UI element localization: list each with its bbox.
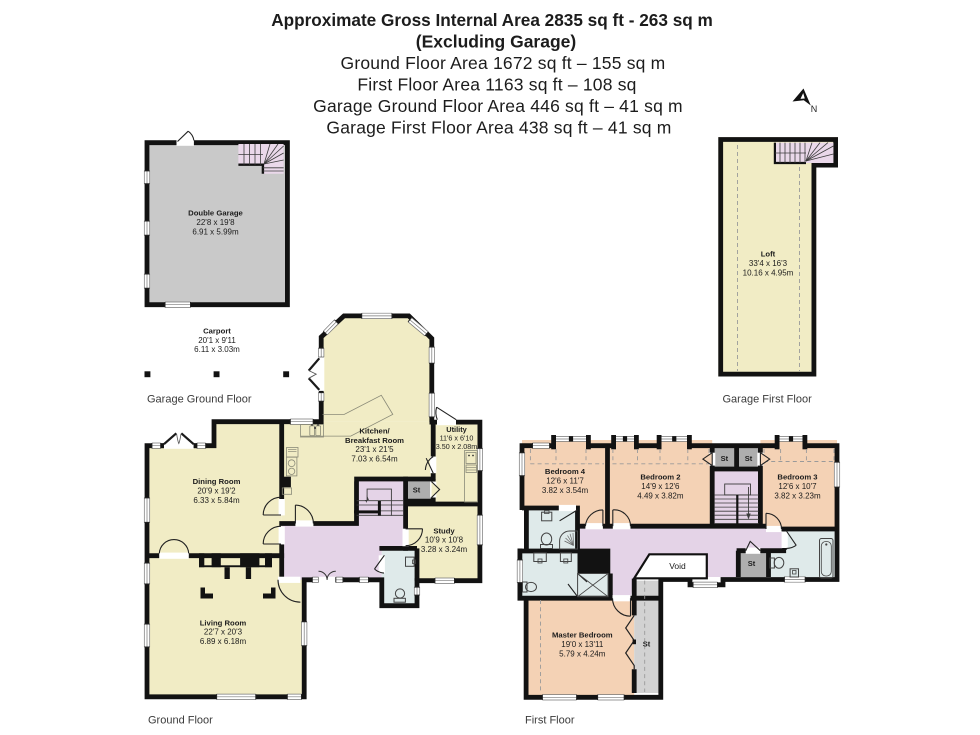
svg-text:Ground Floor: Ground Floor	[148, 715, 213, 727]
svg-text:22'8 x 19'8: 22'8 x 19'8	[196, 218, 235, 227]
svg-text:First Floor: First Floor	[525, 715, 575, 727]
svg-text:St: St	[748, 559, 756, 568]
svg-text:20'9 x 19'2: 20'9 x 19'2	[197, 487, 236, 496]
svg-text:Bedroom 2: Bedroom 2	[640, 473, 680, 482]
svg-text:7.03 x 6.54m: 7.03 x 6.54m	[351, 454, 398, 463]
svg-text:Bedroom 4: Bedroom 4	[545, 467, 586, 476]
svg-text:6.11 x 3.03m: 6.11 x 3.03m	[194, 345, 240, 354]
svg-text:(Excluding Garage): (Excluding Garage)	[416, 32, 576, 52]
svg-text:14'9 x 12'6: 14'9 x 12'6	[641, 482, 680, 491]
svg-text:19'0 x 13'11: 19'0 x 13'11	[561, 640, 604, 649]
svg-text:20'1 x 9'11: 20'1 x 9'11	[198, 336, 236, 345]
svg-text:10.16 x 4.95m: 10.16 x 4.95m	[743, 268, 794, 277]
svg-text:12'6 x 10'7: 12'6 x 10'7	[778, 482, 817, 491]
svg-text:First Floor Area 1163 sq ft –: First Floor Area 1163 sq ft – 108 sq	[357, 75, 636, 95]
svg-text:6.33 x 5.84m: 6.33 x 5.84m	[193, 496, 240, 505]
svg-text:3.28 x 3.24m: 3.28 x 3.24m	[421, 545, 468, 554]
svg-text:Garage Ground Floor: Garage Ground Floor	[147, 394, 252, 406]
svg-text:Living Room: Living Room	[200, 618, 247, 627]
svg-text:Void: Void	[669, 561, 686, 571]
svg-text:Dining Room: Dining Room	[193, 477, 241, 486]
svg-text:Bedroom 3: Bedroom 3	[777, 473, 817, 482]
svg-text:4.49 x 3.82m: 4.49 x 3.82m	[637, 491, 684, 500]
svg-text:12'6 x 11'7: 12'6 x 11'7	[546, 476, 584, 485]
svg-text:3.50 x 2.08m: 3.50 x 2.08m	[436, 442, 478, 451]
svg-text:Approximate Gross Internal Are: Approximate Gross Internal Area 2835 sq …	[271, 10, 713, 30]
svg-text:6.91 x 5.99m: 6.91 x 5.99m	[192, 228, 239, 237]
svg-text:Breakfast Room: Breakfast Room	[345, 436, 404, 445]
svg-text:Kitchen/: Kitchen/	[359, 427, 390, 436]
svg-text:Garage Ground Floor Area 446 s: Garage Ground Floor Area 446 sq ft – 41 …	[313, 96, 683, 116]
svg-text:St: St	[745, 454, 753, 463]
svg-text:10'9 x 10'8: 10'9 x 10'8	[425, 536, 464, 545]
svg-text:3.82 x 3.54m: 3.82 x 3.54m	[542, 486, 589, 495]
svg-text:33'4 x 16'3: 33'4 x 16'3	[749, 259, 788, 268]
svg-text:Garage First Floor: Garage First Floor	[723, 394, 813, 406]
svg-text:Study: Study	[433, 526, 455, 535]
svg-text:Carport: Carport	[203, 327, 231, 336]
svg-text:Double Garage: Double Garage	[188, 209, 243, 218]
svg-text:23'1 x 21'5: 23'1 x 21'5	[355, 445, 394, 454]
svg-text:Loft: Loft	[761, 249, 776, 258]
svg-text:St: St	[413, 485, 421, 494]
svg-text:3.82 x 3.23m: 3.82 x 3.23m	[774, 491, 821, 500]
svg-text:22'7 x 20'3: 22'7 x 20'3	[204, 628, 243, 637]
svg-text:Garage First Floor Area 438 sq: Garage First Floor Area 438 sq ft – 41 s…	[326, 118, 671, 138]
svg-text:5.79 x 4.24m: 5.79 x 4.24m	[559, 649, 606, 658]
svg-text:St: St	[721, 454, 729, 463]
svg-text:Ground Floor Area 1672 sq ft –: Ground Floor Area 1672 sq ft – 155 sq m	[341, 53, 666, 73]
svg-text:St: St	[643, 640, 651, 649]
svg-text:6.89 x 6.18m: 6.89 x 6.18m	[200, 637, 247, 646]
svg-text:Master Bedroom: Master Bedroom	[552, 631, 613, 640]
svg-text:N: N	[811, 104, 818, 114]
